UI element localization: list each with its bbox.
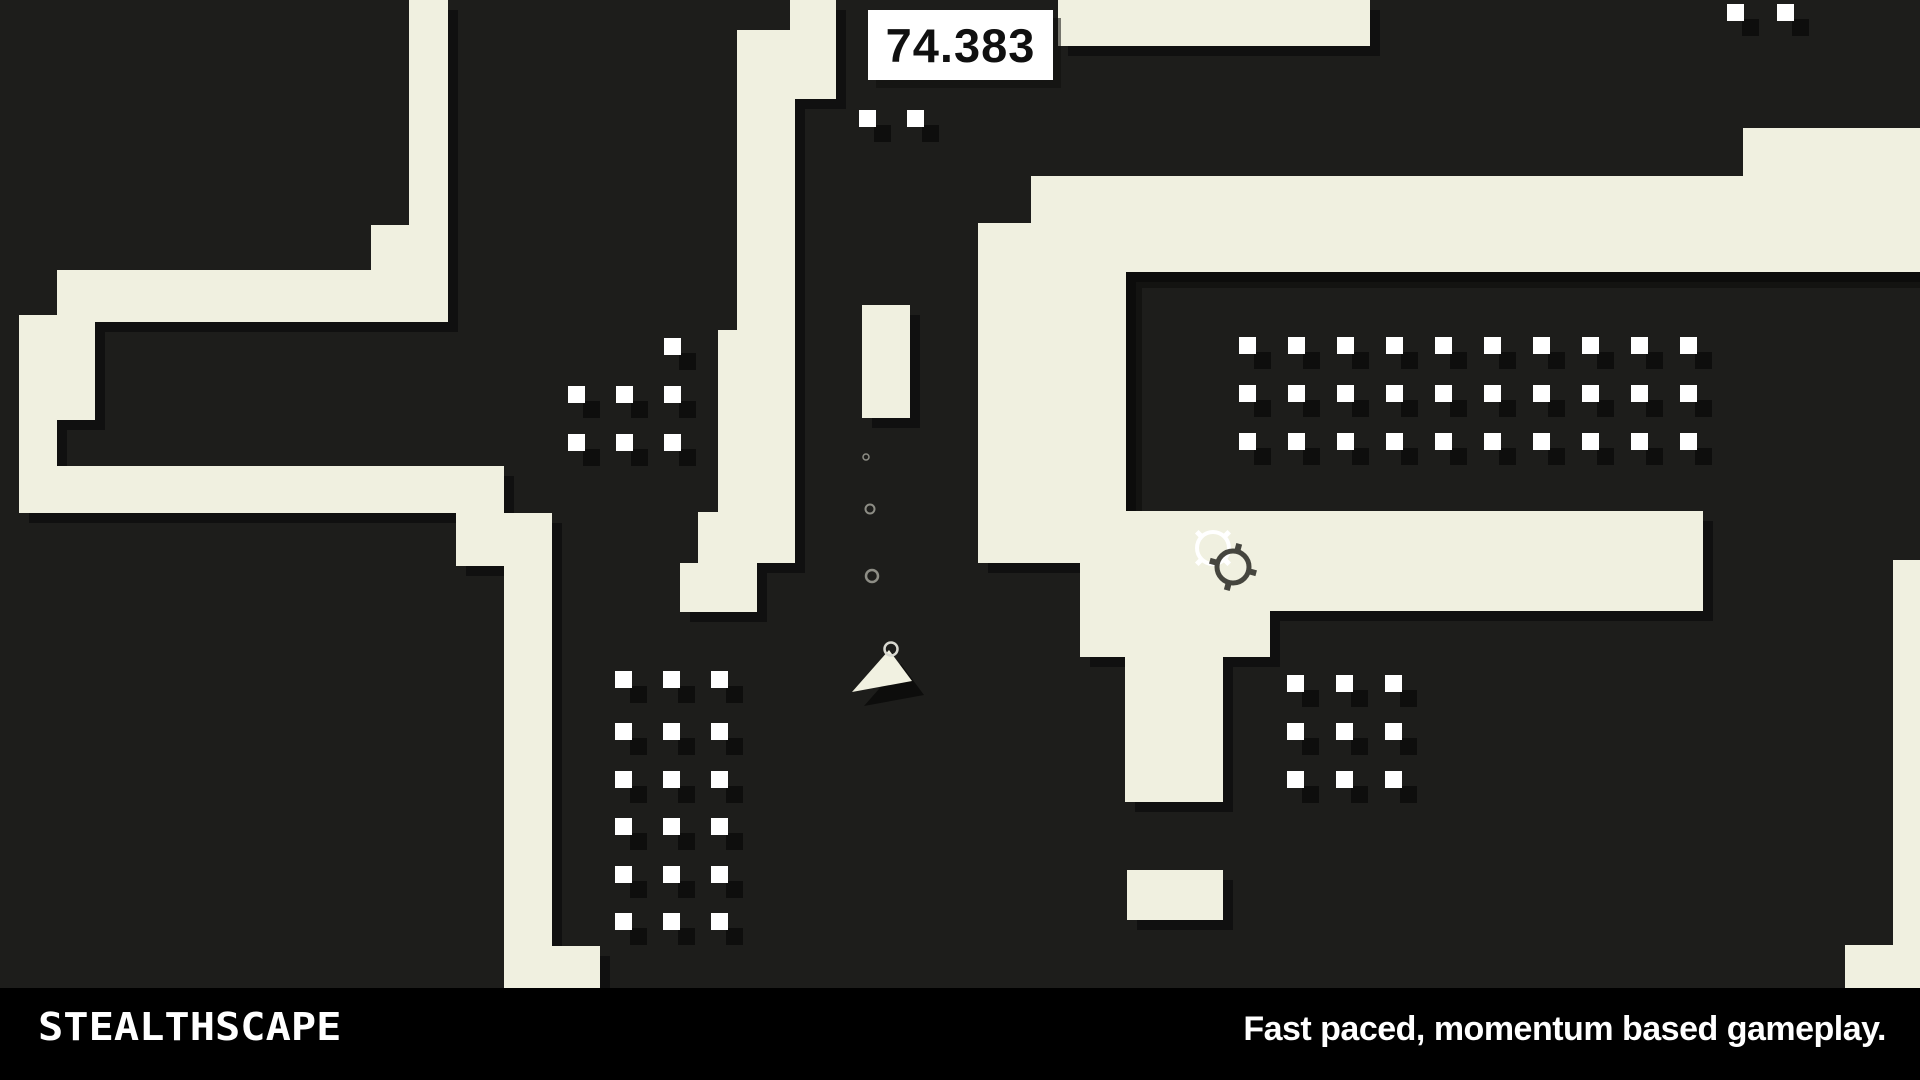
- crosshair-dark: [1217, 551, 1249, 583]
- crosshair-dark-tick: [1237, 544, 1239, 552]
- crosshair-light-tick: [1197, 532, 1202, 537]
- entity-layer: [0, 0, 1920, 1080]
- crosshair-dark-tick: [1210, 561, 1218, 563]
- game-screen[interactable]: 74.383 STEALTHSCAPE Fast paced, momentum…: [0, 0, 1920, 1080]
- crosshair-dark-tick: [1227, 582, 1229, 590]
- crosshair-dark-tick: [1248, 571, 1256, 573]
- bottom-bar: STEALTHSCAPE Fast paced, momentum based …: [0, 988, 1920, 1080]
- crosshair-light-tick: [1224, 532, 1229, 537]
- crosshair-light-tick: [1197, 559, 1202, 564]
- timer-box: 74.383: [868, 10, 1053, 80]
- crosshair-light-tick: [1224, 559, 1229, 564]
- game-logo: STEALTHSCAPE: [38, 1004, 341, 1049]
- player-trail-ring-1: [866, 505, 875, 514]
- timer-value: 74.383: [886, 18, 1036, 73]
- player-trail-ring-2: [866, 570, 878, 582]
- player-trail-ring-0: [863, 454, 869, 460]
- tagline: Fast paced, momentum based gameplay.: [1243, 1010, 1886, 1049]
